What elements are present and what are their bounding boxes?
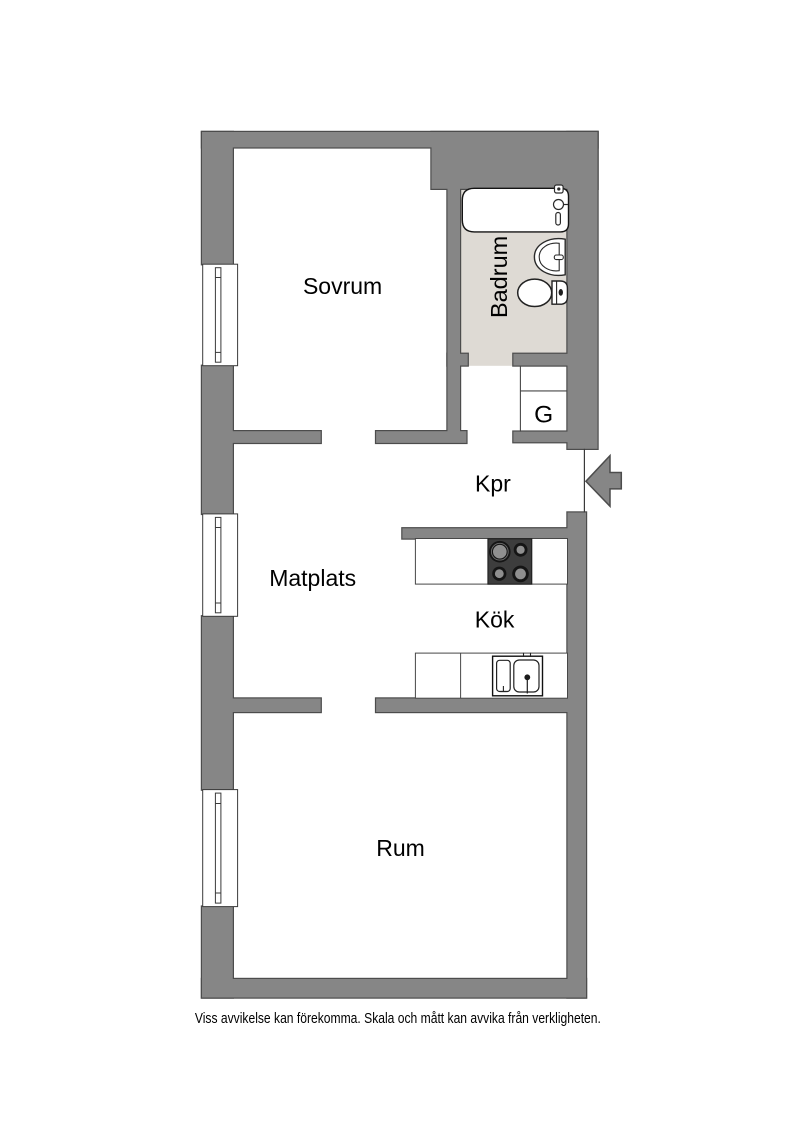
svg-text:Kök: Kök [475, 607, 515, 633]
svg-text:Badrum: Badrum [486, 236, 512, 318]
svg-text:Kpr: Kpr [475, 470, 511, 496]
svg-text:G: G [534, 401, 553, 428]
svg-text:Matplats: Matplats [269, 565, 356, 591]
svg-text:Sovrum: Sovrum [303, 273, 382, 299]
svg-text:Viss avvikelse kan förekomma.: Viss avvikelse kan förekomma. Skala och … [195, 1010, 601, 1027]
svg-text:Rum: Rum [376, 835, 425, 861]
